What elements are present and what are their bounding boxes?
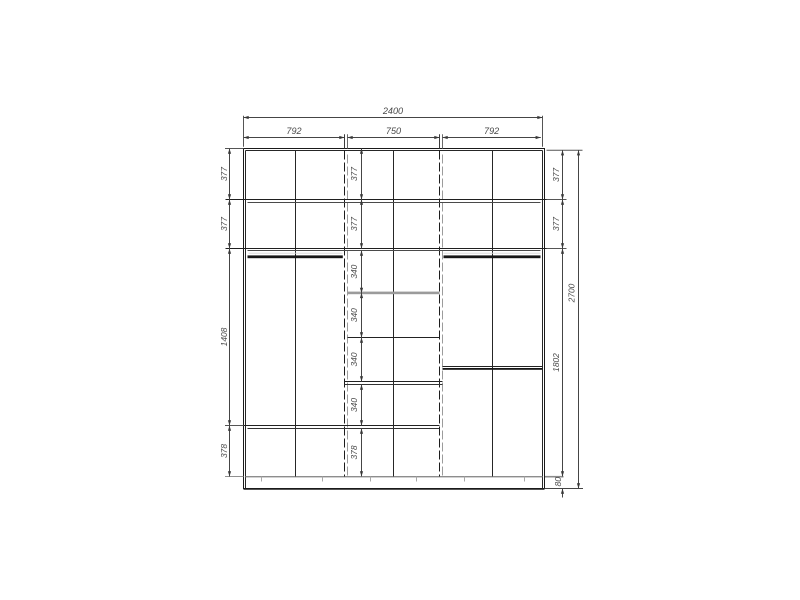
svg-text:792: 792 [484, 126, 499, 136]
svg-text:340: 340 [349, 352, 359, 366]
svg-text:378: 378 [219, 444, 229, 458]
svg-text:340: 340 [349, 308, 359, 322]
svg-text:1802: 1802 [551, 353, 561, 372]
svg-text:80: 80 [553, 477, 563, 487]
svg-text:377: 377 [219, 167, 229, 181]
svg-text:340: 340 [349, 398, 359, 412]
svg-text:750: 750 [386, 126, 401, 136]
svg-text:377: 377 [551, 168, 561, 182]
svg-text:792: 792 [286, 126, 301, 136]
svg-text:377: 377 [551, 217, 561, 231]
svg-text:2700: 2700 [567, 283, 577, 303]
svg-text:377: 377 [349, 167, 359, 181]
svg-text:377: 377 [219, 217, 229, 231]
svg-text:2400: 2400 [382, 106, 403, 116]
svg-text:378: 378 [349, 445, 359, 459]
svg-text:377: 377 [349, 217, 359, 231]
svg-text:1408: 1408 [219, 327, 229, 346]
svg-text:340: 340 [349, 264, 359, 278]
